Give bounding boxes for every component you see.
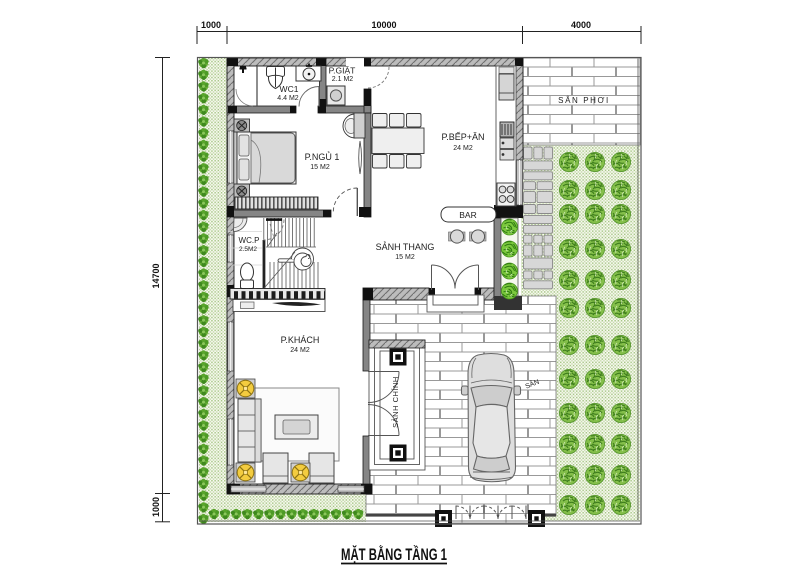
svg-text:4000: 4000 xyxy=(571,20,591,30)
svg-text:15 M2: 15 M2 xyxy=(310,164,330,171)
svg-text:24 M2: 24 M2 xyxy=(290,347,310,354)
svg-text:14700: 14700 xyxy=(151,263,161,288)
svg-text:SẢNH CHÍNH: SẢNH CHÍNH xyxy=(391,376,400,428)
svg-text:1000: 1000 xyxy=(201,20,221,30)
svg-text:15 M2: 15 M2 xyxy=(395,254,415,261)
svg-text:P.KHÁCH: P.KHÁCH xyxy=(281,335,320,345)
svg-text:P.NGỦ 1: P.NGỦ 1 xyxy=(305,151,340,162)
svg-text:SÂN PHƠI: SÂN PHƠI xyxy=(558,96,610,105)
svg-text:4.4 M2: 4.4 M2 xyxy=(277,95,299,102)
svg-text:P.GIẶT: P.GIẶT xyxy=(329,66,356,76)
svg-text:SẢNH THANG: SẢNH THANG xyxy=(376,241,435,252)
svg-text:1000: 1000 xyxy=(151,497,161,517)
svg-text:P.BẾP+ĂN: P.BẾP+ĂN xyxy=(441,132,484,142)
svg-text:BAR: BAR xyxy=(459,210,476,220)
svg-text:2.1 M2: 2.1 M2 xyxy=(332,76,354,83)
svg-text:MẶT BẰNG TẦNG 1: MẶT BẰNG TẦNG 1 xyxy=(341,545,447,564)
svg-text:24 M2: 24 M2 xyxy=(453,145,473,152)
svg-text:2.5M2: 2.5M2 xyxy=(239,246,257,253)
svg-text:10000: 10000 xyxy=(371,20,396,30)
svg-text:WC1: WC1 xyxy=(280,84,299,94)
svg-text:WC.P: WC.P xyxy=(239,236,260,245)
